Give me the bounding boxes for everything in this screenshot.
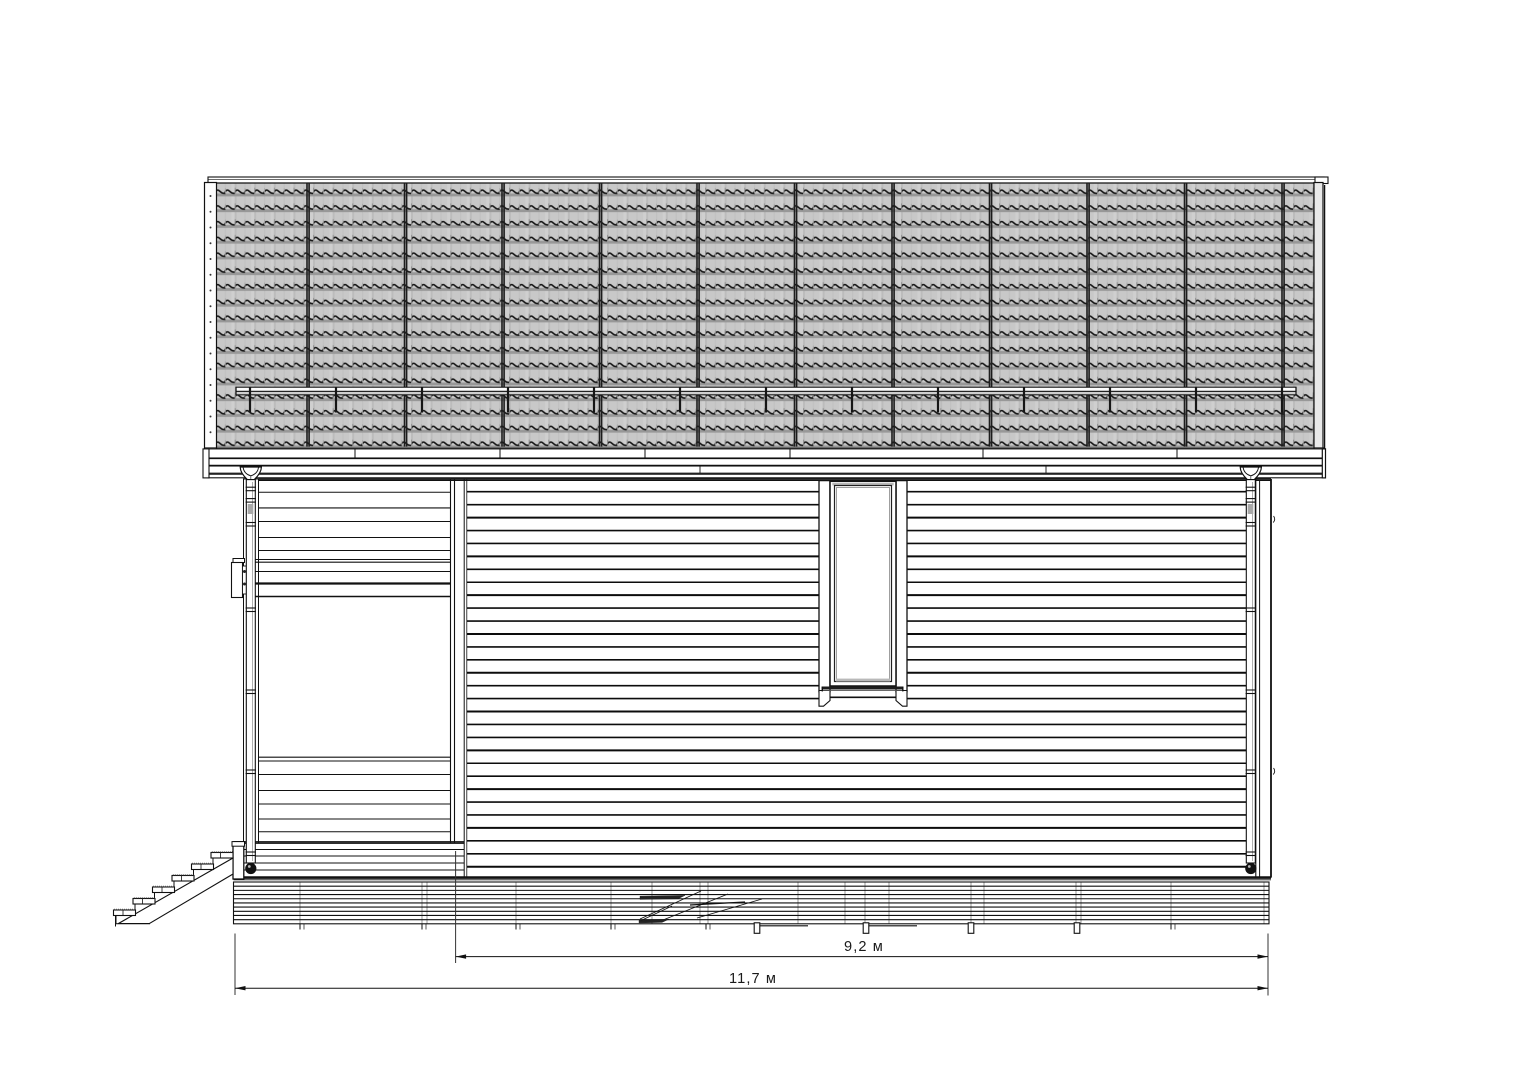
svg-text:9,2 м: 9,2 м bbox=[844, 939, 884, 955]
svg-text:11,7 м: 11,7 м bbox=[729, 971, 777, 987]
